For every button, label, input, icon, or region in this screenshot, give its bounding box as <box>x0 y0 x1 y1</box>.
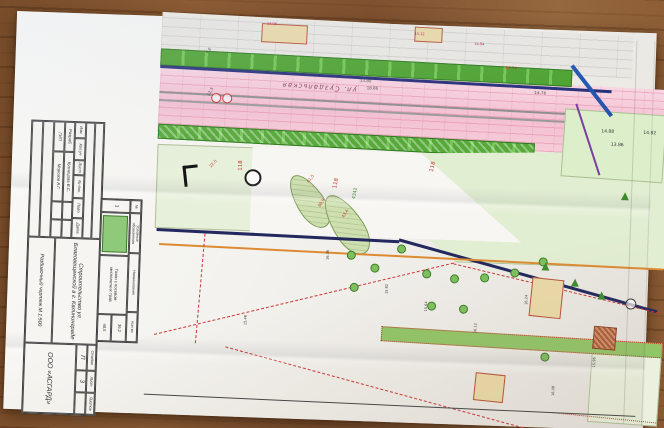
plan-annotation: 15.96 <box>593 357 597 367</box>
legend-qty-value: 36,2 <box>111 314 126 342</box>
stamp-header-cell: Изм. <box>75 122 87 139</box>
stamp-role: Разраб. <box>64 122 75 152</box>
legend-row-number: 1 <box>101 199 130 213</box>
sheet-label: Лист <box>86 370 96 392</box>
plan-annotation: 14.88 <box>601 130 614 135</box>
drawing-sheet: ул. Суздальская 13.8018.8616.7414.7614.8… <box>3 11 657 428</box>
legend-name-header: Наименование <box>127 253 140 312</box>
plan-annotation: 15.48 <box>244 315 248 325</box>
plan-annotation: 13.86 <box>611 144 624 149</box>
plan-annotation: 43,4 <box>341 209 349 219</box>
plan-annotation: 16.12 <box>474 323 478 333</box>
plan-annotation: 15.82 <box>385 284 389 294</box>
organization-name: ООО «АСГАРД» <box>22 342 76 414</box>
legend-row-name: Газон с посевом многолетних трав <box>98 255 129 315</box>
stamp-header-cell: Дата <box>71 218 83 238</box>
plan-annotation: 61,5 <box>306 174 315 184</box>
drawing-name: Разбивочный чертеж М 1:500 <box>25 236 56 343</box>
plan-annotation: 16.08 <box>552 386 556 396</box>
plan-annotation: 4342 <box>353 188 360 200</box>
stamp-header-cell: Подп. <box>72 198 84 218</box>
stage-value: П <box>75 344 88 370</box>
legend-symbol-header: Условные обозначения <box>129 213 141 253</box>
plan-annotation: 15.12 <box>414 33 424 37</box>
plan-annotation: 15.64 <box>425 301 429 311</box>
plan-annotation: 16.36 <box>327 250 331 260</box>
plan-annotation: 18.86 <box>367 86 379 90</box>
legend-num-header: № <box>130 200 141 214</box>
plan-annotation: 22,5 <box>209 159 218 168</box>
sheet-value: 3 <box>74 370 86 393</box>
plan-annotation: 16.24 <box>525 295 529 305</box>
plan-annotation: 60,9 <box>318 198 326 208</box>
plan-annotation: 118 <box>430 161 438 173</box>
plan-annotation: 14.94 <box>474 43 484 47</box>
stamp-name: Морозов А.Г. <box>52 151 65 202</box>
stamp-header-cell: Лист <box>73 160 85 175</box>
plan-annotation: 14.76 <box>535 91 547 95</box>
sheets-label: Листов <box>85 392 95 414</box>
plan-annotation: 118 <box>239 160 245 171</box>
plan-annotation: 118 <box>333 178 341 189</box>
legend-qty-value: 48,5 <box>97 313 112 341</box>
stamp-header-cell: № док. <box>73 175 85 199</box>
plan-annotation: 13.80 <box>360 79 372 83</box>
stamp-role: ГИП <box>53 121 65 151</box>
stage-label: Стадия <box>87 345 97 371</box>
plan-annotation: 14.82 <box>643 132 656 137</box>
legend-swatch <box>102 215 128 252</box>
title-block: Изм. Кол.уч Лист № док. Подп. Дата Разра… <box>23 120 105 414</box>
stamp-name: Кузнецова В.С. <box>63 152 75 203</box>
plan-annotation: 4,6 <box>205 47 212 54</box>
plan-annotation: 16.74 <box>505 66 517 70</box>
photo-scene: ул. Суздальская 13.8018.8616.7414.7614.8… <box>0 0 664 428</box>
legend-table: № Условные обозначения Наименование Кол-… <box>98 198 143 341</box>
stamp-header-cell: Кол.уч <box>74 138 86 160</box>
plan-annotation: 14.06 <box>267 23 277 27</box>
legend-qty-header: Кол-во <box>126 312 138 343</box>
plan-annotation: 12,3 <box>206 87 214 97</box>
project-title: Строительство ул. Благовещенской в г. Ка… <box>52 237 101 345</box>
